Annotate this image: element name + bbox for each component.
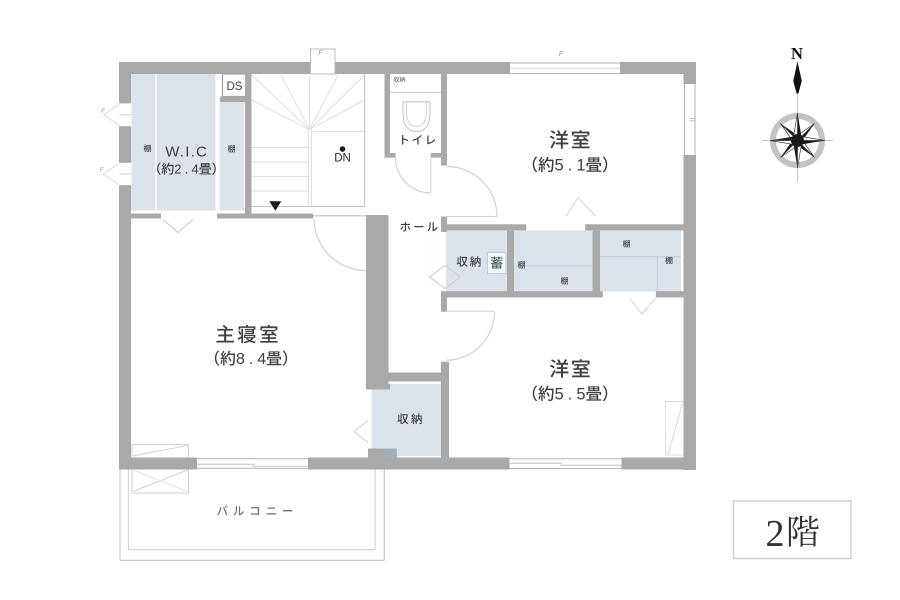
svg-text:DS: DS	[227, 81, 243, 93]
svg-text:2.4: 2.4	[174, 162, 198, 177]
svg-text:8.4: 8.4	[236, 351, 266, 368]
svg-text:W.I.C: W.I.C	[165, 144, 207, 161]
svg-text:N: N	[791, 44, 803, 63]
svg-text:5.5: 5.5	[555, 386, 586, 404]
svg-text:F: F	[318, 48, 323, 57]
svg-text:5.1: 5.1	[555, 157, 586, 175]
svg-text:F: F	[559, 49, 564, 58]
svg-text:2: 2	[766, 513, 785, 555]
svg-text:DN: DN	[334, 153, 351, 165]
